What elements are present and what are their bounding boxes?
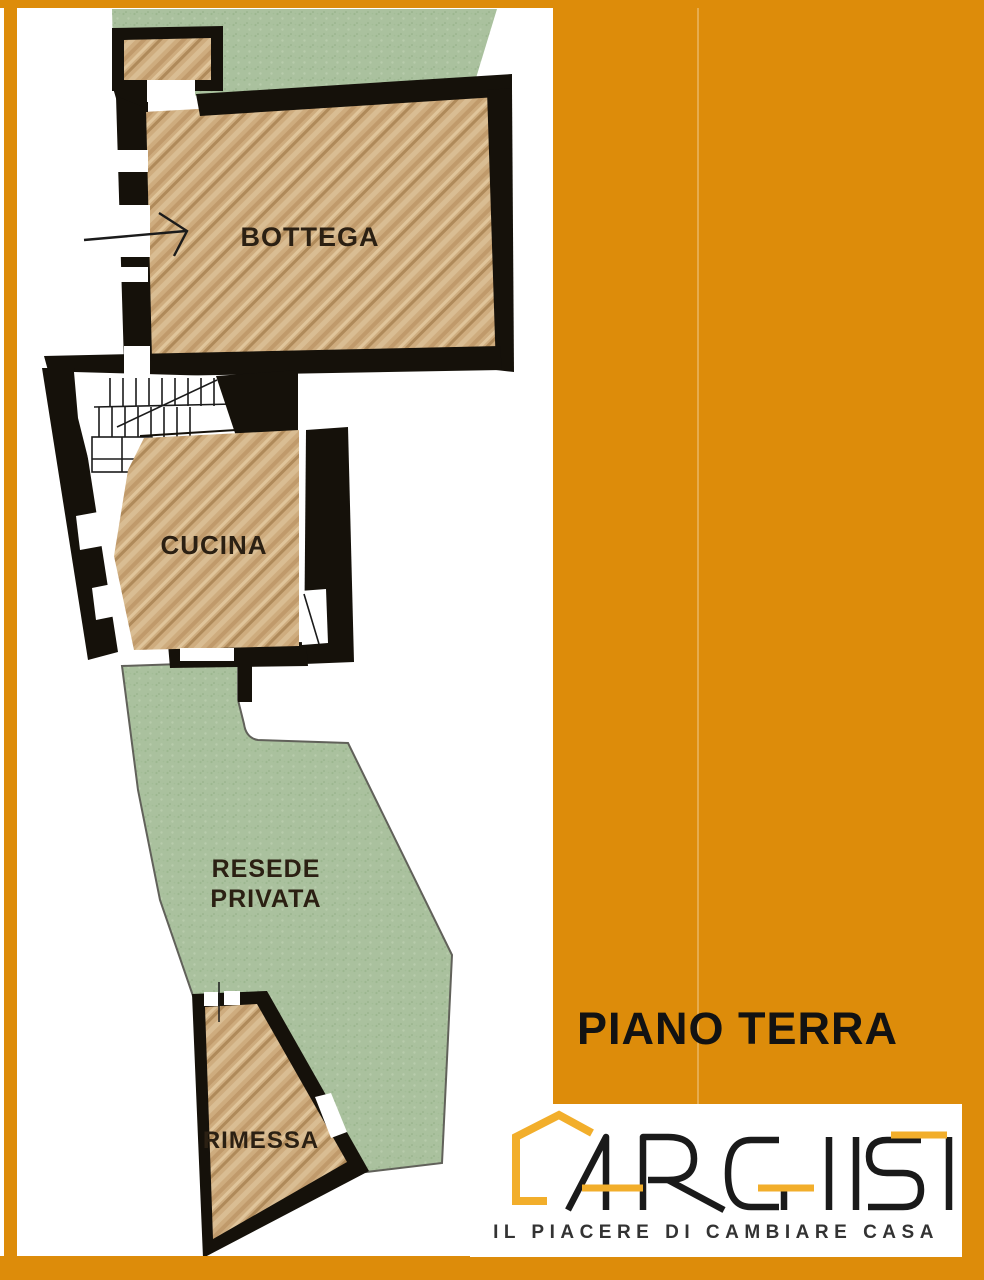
floor-title: PIANO TERRA <box>577 1003 898 1055</box>
window-opening <box>180 648 234 661</box>
brand-letters <box>568 1137 949 1210</box>
window-opening <box>76 512 102 550</box>
door-opening <box>224 991 240 1005</box>
room-label-resede-line1: RESEDE <box>212 855 321 883</box>
room-label-rimessa: RIMESSA <box>203 1127 319 1154</box>
vestibule-floor <box>124 38 211 80</box>
room-label-resede-line2: PRIVATA <box>210 885 321 913</box>
archist-logo <box>470 1104 962 1219</box>
entrance-opening <box>110 205 150 257</box>
window-opening <box>110 150 148 172</box>
side-panel <box>553 0 984 1280</box>
page-border-left <box>4 0 17 1280</box>
door-opening <box>204 992 218 1006</box>
window-opening <box>92 584 116 620</box>
page: BOTTEGA CUCINA RESEDE PRIVATA RIMESSA PI… <box>0 0 984 1280</box>
room-label-cucina: CUCINA <box>160 530 267 560</box>
wall <box>238 658 252 702</box>
logo-tagline: IL PIACERE DI CAMBIARE CASA <box>470 1222 962 1244</box>
panel-fold-seam <box>697 0 699 1280</box>
room-label-bottega: BOTTEGA <box>241 222 380 252</box>
page-border-bottom <box>0 1256 984 1280</box>
logo-box: ARCHIST IL PIACERE DI CAMBIAR <box>470 1104 962 1257</box>
page-border-top <box>0 0 984 8</box>
door-opening <box>147 80 195 102</box>
window-opening <box>112 267 148 282</box>
floor-plan: BOTTEGA CUCINA RESEDE PRIVATA RIMESSA <box>0 0 560 1280</box>
